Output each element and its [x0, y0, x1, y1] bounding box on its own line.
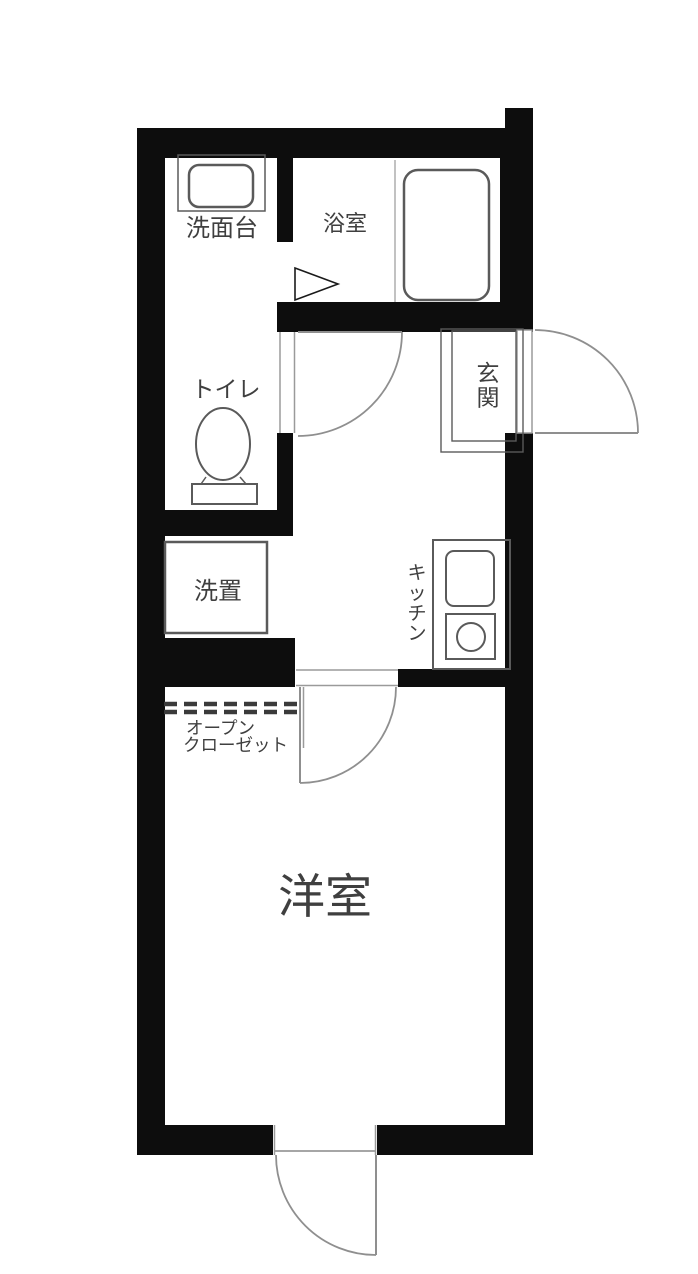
- corridor-door-arc: [298, 332, 402, 436]
- room-label-entrance: 玄関: [477, 360, 500, 410]
- room-label-toilet: トイレ: [192, 376, 261, 402]
- kitchen-burner-box-icon: [446, 614, 495, 659]
- wall-top-right-block: [505, 108, 533, 130]
- entrance-door-frame: [517, 330, 532, 433]
- room-label-washbasin: 洗面台: [186, 215, 258, 242]
- room-label-closet-line2: クローゼット: [183, 735, 288, 755]
- washbasin-sink-icon: [189, 165, 253, 207]
- wall-right-upper: [500, 128, 533, 330]
- toilet-tank-icon: [192, 484, 257, 504]
- wall-toilet-bottom: [137, 510, 293, 536]
- room-label-kitchen: キッチン: [407, 563, 426, 644]
- kitchen-burner-icon: [457, 623, 485, 651]
- wall-bottom-right: [377, 1125, 533, 1155]
- wall-washbasin-bathroom-divider: [277, 158, 293, 242]
- toilet-bowl-icon: [196, 408, 250, 480]
- entrance-door-arc: [535, 330, 638, 433]
- wall-top: [137, 128, 533, 158]
- wall-hall-bottom-left: [137, 638, 295, 687]
- terrace-door-arc: [276, 1155, 376, 1255]
- wall-bottom-left: [137, 1125, 273, 1155]
- room-label-bathroom: 浴室: [323, 211, 367, 236]
- kitchen-counter-icon: [433, 540, 510, 669]
- door-swings: [276, 268, 638, 1255]
- room-label-laundry: 洗置: [194, 578, 242, 605]
- bathroom-door-triangle: [295, 268, 338, 300]
- floorplan-canvas: 洗面台 浴室 トイレ 玄関 洗置 キッチン オープン クローゼット 洋室: [0, 0, 698, 1274]
- wall-bathroom-bottom: [277, 302, 533, 332]
- floorplan-drawing: 洗面台 浴室 トイレ 玄関 洗置 キッチン オープン クローゼット 洋室: [0, 0, 698, 1274]
- kitchen-sink-icon: [446, 551, 494, 606]
- bathtub-icon: [404, 170, 489, 300]
- wall-toilet-right: [277, 433, 293, 512]
- outer-and-inner-walls: [137, 108, 533, 1155]
- room-label-western-room: 洋室: [278, 870, 372, 923]
- room-door-arc: [300, 687, 396, 783]
- door-openings: [275, 330, 533, 1155]
